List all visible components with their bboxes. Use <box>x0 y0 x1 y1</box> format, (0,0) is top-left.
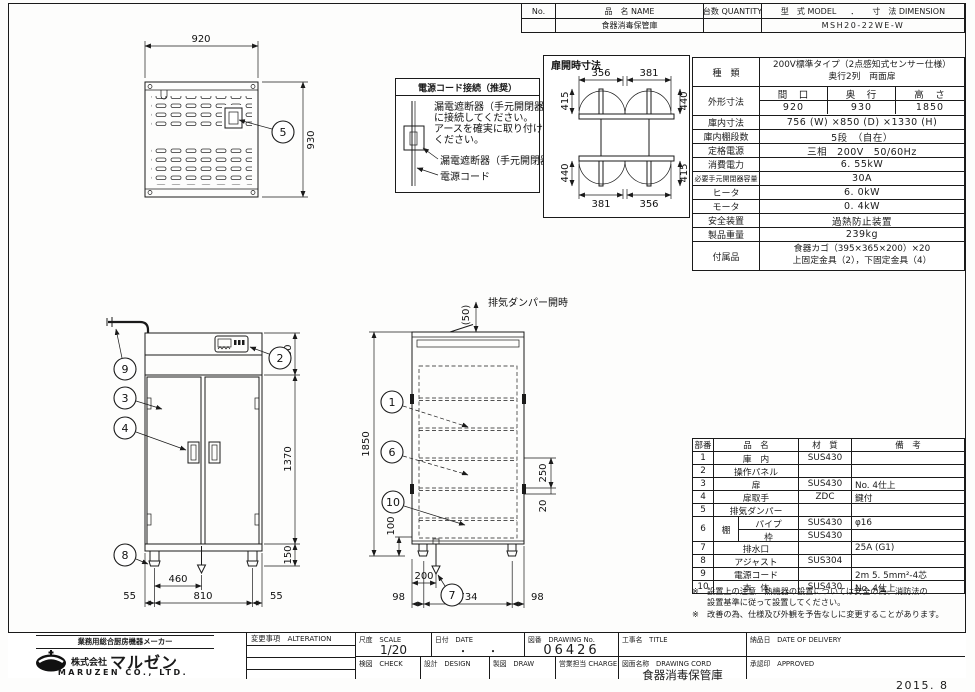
power-cord-note-box: 電源コード接続（推奨） 漏電遮断器（手元開閉器） に接続してください。 アースを… <box>395 78 540 193</box>
spec-row: 製品重量239kg <box>693 227 964 241</box>
callout-interior: 1 <box>381 391 403 413</box>
spec-row: 消費電力6. 55kW <box>693 157 964 171</box>
callout-adjust-foot: 8 <box>114 544 136 566</box>
spec-row: モータ0. 4kW <box>693 199 964 213</box>
alteration-label: 変更事項 ALTERATION <box>247 633 356 646</box>
callout-shelf: 6 <box>381 441 403 463</box>
no-value <box>522 19 556 32</box>
left-door <box>147 377 201 544</box>
drawing-no-cell: 図番 DRAWING No. 06426 <box>524 633 618 656</box>
draw-cell: 製図 DRAW <box>489 656 555 679</box>
spec-row-accessories: 付属品 食器カゴ（395×365×200）×20 上固定金具（2），下固定金具（… <box>693 241 964 270</box>
spec-row: 安全装置過熱防止装置 <box>693 213 964 227</box>
dim-front-810: 810 <box>193 591 212 602</box>
dim-section-98-left: 98 <box>392 592 405 603</box>
company-name-en: MARUZEN CO., LTD. <box>8 668 238 677</box>
drain-arrow <box>198 565 206 573</box>
scale-value: 1/20 <box>356 643 431 657</box>
alteration-row <box>247 646 356 658</box>
company-prefix: 株式会社 <box>71 655 107 668</box>
damper-open-label: 排気ダンパー開時 <box>488 296 568 309</box>
adjustable-feet-section <box>418 544 517 556</box>
breaker-label: 漏電遮断器（手元開閉器） <box>440 154 560 167</box>
model-number: MSH20-22WE-W <box>762 19 964 32</box>
power-cord <box>108 322 148 333</box>
dim-front-55-left: 55 <box>123 591 136 602</box>
parts-table: 部番 品 名 材 質 備 考 1庫 内SUS430 2操作パネル 3扉SUS43… <box>692 438 965 594</box>
callout-exhaust-damper: 5 <box>272 121 294 143</box>
dim-shelf-pitch: 250 <box>538 463 549 482</box>
spec-row: 庫内棚段数5段 （自在） <box>693 129 964 143</box>
parts-header: 部番 品 名 材 質 備 考 <box>693 439 964 451</box>
svg-text:3: 3 <box>122 392 129 405</box>
name-label: 品 名 NAME <box>556 4 704 19</box>
dim-front-55-right: 55 <box>270 591 283 602</box>
scale-cell: 尺度 SCALE 1/20 <box>355 633 431 656</box>
footer-block: 業務用総合厨房機器メーカー 株式会社 マルゼン MARUZEN CO., LTD… <box>8 632 966 678</box>
dim-damper-open: (50) <box>461 305 472 326</box>
parts-row: 9電源コード2m 5. 5mm²-4芯 <box>693 567 964 580</box>
callout-door-handle: 4 <box>114 417 136 439</box>
dim-front-150: 150 <box>283 545 294 564</box>
svg-text:9: 9 <box>122 363 129 376</box>
cabinet-section-outline <box>412 332 524 544</box>
title-block: No. 品 名 NAME 台数 QUANTITY 型 式 MODEL ． 寸 法… <box>521 3 965 33</box>
svg-text:5: 5 <box>280 126 287 139</box>
control-panel <box>215 336 248 352</box>
issue-date: 2015. 8 <box>896 679 949 692</box>
dim-front-460: 460 <box>168 574 187 585</box>
dim-section-1850: 1850 <box>361 431 372 456</box>
door-open-dims-box: 扉開時寸法 356 381 415 440 <box>543 55 690 218</box>
vent-slots-lower <box>151 148 252 185</box>
product-name: 食器消毒保管庫 <box>556 19 704 32</box>
door-open-diagram: 扉開時寸法 356 381 415 440 <box>544 56 689 217</box>
parts-row: 7排水口25A (G1) <box>693 541 964 554</box>
parts-row: 1庫 内SUS430 <box>693 451 964 464</box>
dim-top-left-width: 356 <box>591 68 610 79</box>
dim-section-100: 100 <box>386 516 397 535</box>
dim-bottom-right-width: 356 <box>639 199 658 210</box>
svg-text:2: 2 <box>277 352 284 365</box>
power-note-line: アースを確実に取り付けて <box>434 122 553 135</box>
charge-cell: 営業担当 CHARGE <box>555 656 618 679</box>
spec-row: 定格電源三相 200V 50/60Hz <box>693 143 964 157</box>
alteration-block: 変更事項 ALTERATION <box>246 633 356 679</box>
callout-drain: 7 <box>441 584 463 606</box>
spec-row-kind: 種 類 200V標準タイプ（2点感知式センサー仕様） 奥行2列 両面扉 <box>693 58 964 86</box>
parts-row-shelf: 6 棚 パイプ SUS430 φ16 枠 SUS430 <box>693 516 964 541</box>
svg-text:1: 1 <box>389 396 396 409</box>
project-title-cell: 工事名 TITLE <box>618 633 746 656</box>
parts-row: 2操作パネル <box>693 464 964 477</box>
vent-band <box>417 340 519 347</box>
svg-text:10: 10 <box>386 496 400 509</box>
callout-power-cord: 9 <box>114 358 136 380</box>
right-door <box>205 377 259 544</box>
power-note-line: に接続してください。 <box>434 111 533 124</box>
dim-shelf-gap: 20 <box>538 500 549 513</box>
spec-row-outer: 外形寸法 間 口 奥 行 高 さ 920 930 1850 <box>693 86 964 115</box>
company-tagline: 業務用総合厨房機器メーカー <box>36 635 214 649</box>
callout-door: 3 <box>114 387 136 409</box>
delivery-cell: 納品日 DATE OF DELIVERY <box>746 633 965 656</box>
breaker-box <box>404 126 424 150</box>
design-cell: 設計 DESIGN <box>420 656 489 679</box>
check-cell: 検図 CHECK <box>355 656 420 679</box>
spec-table: 種 類 200V標準タイプ（2点感知式センサー仕様） 奥行2列 両面扉 外形寸法… <box>692 57 965 271</box>
dim-bottom-left-width: 381 <box>591 199 610 210</box>
dim-top-right-depth: 440 <box>679 91 690 110</box>
svg-text:6: 6 <box>389 446 396 459</box>
parts-row: 5排気ダンパー <box>693 503 964 516</box>
dim-top-right-width: 381 <box>639 68 658 79</box>
approved-cell: 承認印 APPROVED <box>746 656 965 679</box>
power-box-diagram: 漏電遮断器（手元開閉器） に接続してください。 アースを確実に取り付けて くださ… <box>396 96 539 193</box>
top-view: 920 930 5 <box>125 30 325 215</box>
drawing-name-value: 食器消毒保管庫 <box>619 667 746 683</box>
front-view: 330 1370 150 460 55 810 55 9 3 4 2 <box>88 285 340 620</box>
dim-top-depth: 930 <box>306 130 317 149</box>
adjustable-feet <box>149 551 258 566</box>
spec-row: 庫内寸法756 (W) ×850 (D) ×1330 (H) <box>693 115 964 129</box>
dim-bottom-left-depth: 440 <box>560 163 571 182</box>
spec-row: ヒータ6. 0kW <box>693 185 964 199</box>
installation-notes: ※ 設置上の注意 熱機器の設置については安全の為、消防法の 設置基準に従って設置… <box>692 586 970 620</box>
parts-row: 4扉取手ZDC鍵付 <box>693 490 964 503</box>
spec-row: 必要手元開閉器容量30A <box>693 171 964 185</box>
svg-text:8: 8 <box>122 549 129 562</box>
cabinet-front-outline <box>145 333 262 551</box>
callout-control-panel: 2 <box>269 347 291 369</box>
qty-label: 台数 QUANTITY <box>704 4 762 19</box>
date-cell: 日付 DATE ・ ・ <box>431 633 524 656</box>
power-note-line: 漏電遮断器（手元開閉器） <box>434 100 554 113</box>
callout-body: 10 <box>382 491 404 513</box>
dim-front-1370: 1370 <box>283 446 294 471</box>
dim-bottom-right-depth: 415 <box>679 163 690 182</box>
parts-row: 3扉SUS430No. 4仕上 <box>693 477 964 490</box>
drawing-sheet: No. 品 名 NAME 台数 QUANTITY 型 式 MODEL ． 寸 法… <box>0 0 975 692</box>
section-view: (50) 排気ダンパー開時 1850 100 <box>355 278 605 618</box>
model-dim-label: 型 式 MODEL ． 寸 法 DIMENSION <box>762 4 964 19</box>
svg-text:7: 7 <box>449 589 456 602</box>
power-box-title: 電源コード接続（推奨） <box>396 79 539 96</box>
no-label: No. <box>522 4 556 19</box>
dim-top-left-depth: 415 <box>560 91 571 110</box>
dim-top-width: 920 <box>191 34 210 45</box>
drawing-name-cell: 図面名称 DRAWING CORD 食器消毒保管庫 <box>618 656 746 679</box>
qty-value <box>704 19 762 32</box>
basket-zone <box>419 366 517 538</box>
cord-label: 電源コード <box>440 170 490 183</box>
svg-text:4: 4 <box>122 422 129 435</box>
power-note-line: ください。 <box>434 134 484 146</box>
alteration-row <box>247 658 356 670</box>
parts-row: 8アジャストSUS304 <box>693 554 964 567</box>
dim-section-98-right: 98 <box>531 592 544 603</box>
